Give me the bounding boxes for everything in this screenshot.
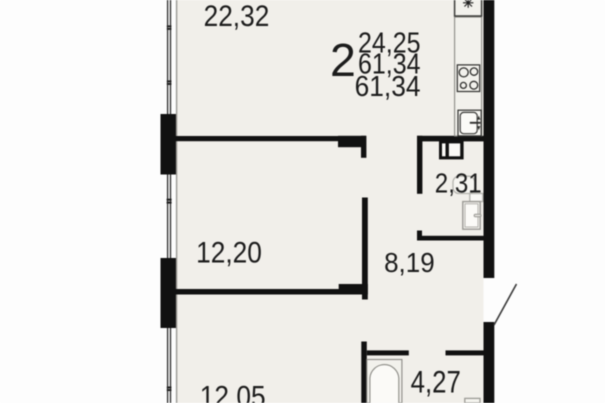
svg-text:61,34: 61,34 [355,71,421,103]
svg-text:22,32: 22,32 [204,0,270,33]
svg-text:12,05: 12,05 [200,381,266,403]
svg-text:4,27: 4,27 [411,363,461,399]
svg-text:8,19: 8,19 [384,247,435,278]
svg-text:12,20: 12,20 [196,236,262,269]
svg-text:2,31: 2,31 [435,167,482,198]
svg-text:2: 2 [330,34,356,86]
